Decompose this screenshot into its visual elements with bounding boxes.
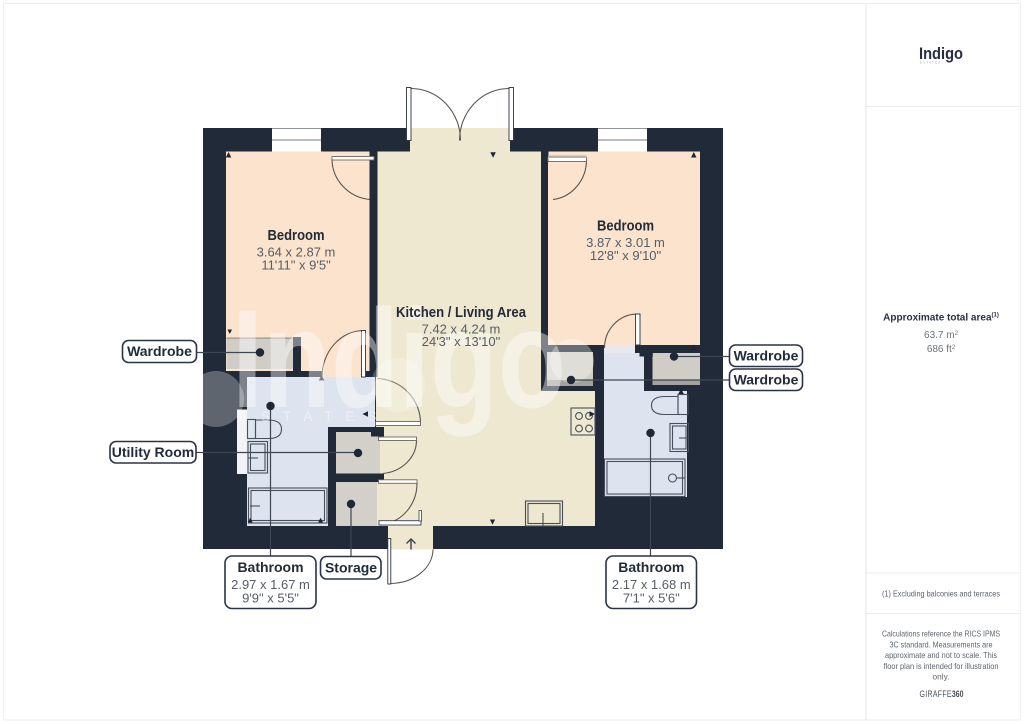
- svg-text:Kitchen / Living Area: Kitchen / Living Area: [396, 305, 527, 321]
- svg-text:floor plan is intended for ill: floor plan is intended for illustration: [884, 661, 999, 671]
- svg-text:Wardrobe: Wardrobe: [127, 343, 192, 359]
- svg-text:Bedroom: Bedroom: [268, 228, 325, 244]
- svg-text:12'8" x 9'10": 12'8" x 9'10": [590, 248, 662, 263]
- svg-text:ESTATES: ESTATES: [239, 409, 390, 424]
- svg-text:Storage: Storage: [325, 560, 377, 576]
- svg-text:only.: only.: [933, 672, 950, 682]
- svg-text:9'9" x 5'5": 9'9" x 5'5": [242, 591, 299, 606]
- svg-text:3C standard. Measurements are: 3C standard. Measurements are: [890, 639, 993, 649]
- svg-text:Bathroom: Bathroom: [237, 559, 303, 575]
- svg-text:ESTATES: ESTATES: [920, 61, 941, 65]
- svg-text:Calculations reference the RIC: Calculations reference the RICS IPMS: [882, 629, 1000, 639]
- svg-text:7'1" x 5'6": 7'1" x 5'6": [623, 591, 680, 606]
- svg-text:Wardrobe: Wardrobe: [734, 348, 799, 364]
- svg-text:Bathroom: Bathroom: [618, 559, 684, 575]
- svg-text:(1) Excluding balconies and te: (1) Excluding balconies and terraces: [882, 589, 1000, 599]
- svg-text:Wardrobe: Wardrobe: [734, 372, 799, 388]
- svg-text:GIRAFFE360: GIRAFFE360: [920, 689, 964, 699]
- svg-text:Approximate total area(1): Approximate total area(1): [883, 313, 999, 324]
- svg-text:24'3" x 13'10": 24'3" x 13'10": [422, 334, 501, 349]
- svg-text:11'11" x 9'5": 11'11" x 9'5": [261, 258, 331, 273]
- svg-text:Bedroom: Bedroom: [597, 219, 654, 235]
- svg-text:Utility Room: Utility Room: [112, 444, 194, 460]
- svg-text:approximate and not to scale.: approximate and not to scale. This: [885, 650, 997, 660]
- svg-text:63.7 m2: 63.7 m2: [924, 330, 959, 341]
- svg-text:686 ft2: 686 ft2: [927, 344, 956, 355]
